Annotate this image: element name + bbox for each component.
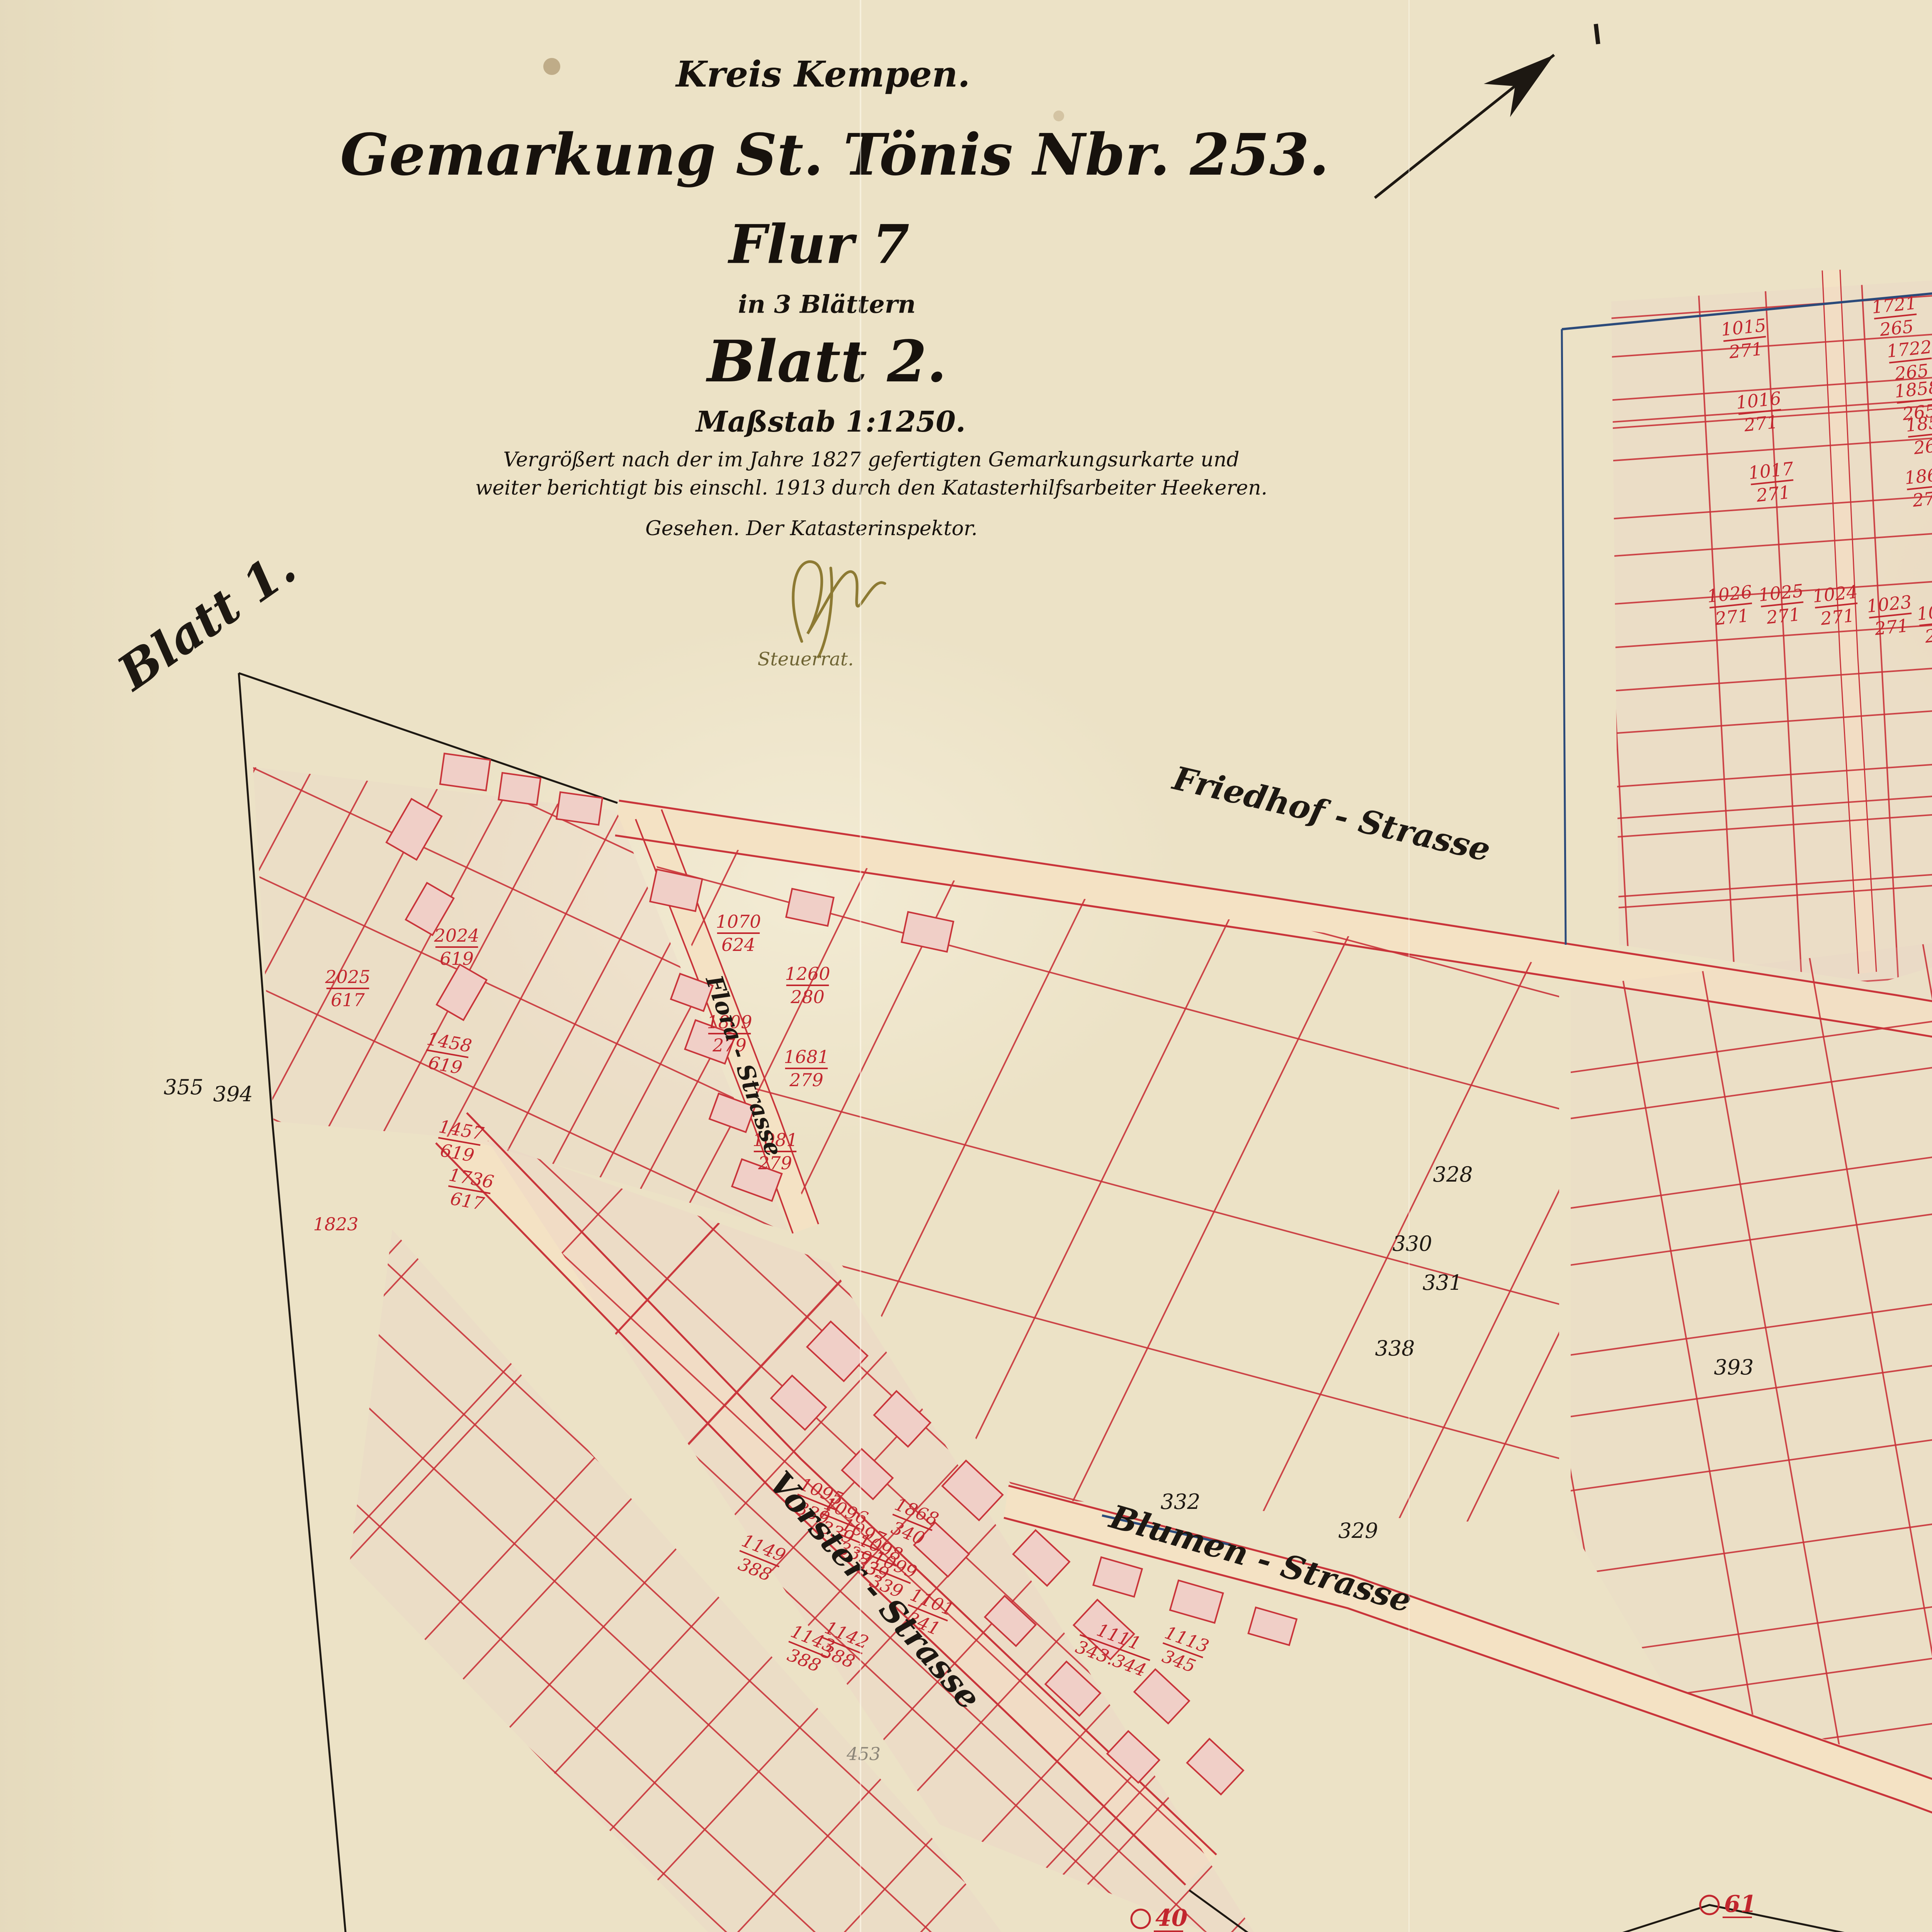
- parcel-boundary-line: [1282, 1876, 1681, 1932]
- title-note-1: Vergrößert nach der im Jahre 1827 gefert…: [503, 448, 1239, 471]
- parcel-number: 331: [1422, 1270, 1462, 1295]
- svg-text:1070: 1070: [716, 911, 761, 932]
- survey-point-number: 40: [1155, 1905, 1188, 1932]
- svg-text:329: 329: [1338, 1519, 1378, 1543]
- building-footprint: [498, 773, 541, 805]
- svg-text:271: 271: [1911, 486, 1932, 511]
- svg-text:328: 328: [1433, 1162, 1473, 1187]
- parcel-number: 328: [1433, 1162, 1473, 1187]
- parcel-boundary-line: [1467, 128, 1521, 1170]
- building-footprint: [1093, 1557, 1142, 1597]
- svg-text:331: 331: [1422, 1270, 1462, 1295]
- parcel-number: 1736617: [443, 1164, 495, 1216]
- blumen-strasse-label: Blumen - Strasse: [1105, 1497, 1416, 1620]
- parcel-boundary-line: [1337, 1846, 1932, 1932]
- paper-crease: [860, 0, 861, 1932]
- svg-text:330: 330: [1392, 1231, 1432, 1256]
- title-note-2: weiter berichtigt bis einschl. 1913 durc…: [475, 476, 1267, 500]
- survey-point-number: 64: [1914, 1930, 1932, 1932]
- svg-text:355: 355: [163, 1075, 203, 1099]
- title-gemarkung: Gemarkung St. Tönis Nbr. 253.: [340, 121, 1329, 188]
- svg-text:265: 265: [1912, 434, 1932, 458]
- survey-point-circle: [1131, 1910, 1150, 1928]
- svg-text:271: 271: [1743, 411, 1779, 435]
- svg-text:2025: 2025: [325, 966, 370, 987]
- building-footprint: [1187, 1739, 1243, 1794]
- paper-stain: [543, 58, 560, 75]
- svg-text:1681: 1681: [784, 1046, 829, 1067]
- title-steuerrat: Steuerrat.: [758, 648, 854, 670]
- parcel-boundary-line: [1244, 845, 1463, 1932]
- parcel-number: 330: [1392, 1231, 1432, 1256]
- svg-text:453: 453: [846, 1743, 881, 1764]
- parcel-number: 355: [163, 1075, 203, 1099]
- south-sheet-boundary: [1189, 1890, 1932, 1932]
- block-left-mid: [0, 368, 1165, 1614]
- parcel-number: 2024619: [434, 925, 479, 969]
- title-region: Kreis Kempen.: [676, 53, 970, 95]
- building-footprint: [650, 869, 702, 911]
- svg-text:1823: 1823: [313, 1214, 358, 1235]
- parcel-number: 453: [846, 1743, 881, 1764]
- svg-text:619: 619: [440, 948, 474, 969]
- parcel-number: 1823: [313, 1214, 358, 1235]
- parcel-boundary-line: [1474, 128, 1529, 1170]
- svg-text:271: 271: [1765, 604, 1801, 628]
- svg-text:271: 271: [1728, 338, 1764, 362]
- blue-boundary-vertical: [1562, 329, 1566, 945]
- parcel-number: 1070624: [716, 911, 761, 955]
- parcel-boundary-line: [1335, 1829, 1932, 1932]
- svg-text:1858: 1858: [1893, 376, 1932, 402]
- friedhof-strasse-label: Friedhof - Strasse: [1169, 759, 1494, 869]
- svg-text:271: 271: [1714, 605, 1750, 629]
- parcel-boundary-line: [314, 421, 1096, 786]
- parcel-boundary-line: [1268, 1882, 1667, 1932]
- svg-text:271: 271: [1755, 481, 1791, 506]
- building-footprint: [1170, 1580, 1223, 1623]
- parcel-boundary-line: [1330, 168, 1932, 241]
- map-drawing: 1015271101627110172711721265172226518582…: [0, 0, 1932, 1932]
- svg-text:271: 271: [1873, 615, 1910, 639]
- svg-text:2024: 2024: [434, 925, 479, 946]
- building-footprint: [556, 792, 602, 825]
- north-arrow-head: [1484, 55, 1554, 117]
- title-blaetter: in 3 Blättern: [738, 290, 916, 319]
- svg-text:624: 624: [721, 934, 755, 955]
- parcel-number: 1113345: [1154, 1622, 1212, 1679]
- svg-text:393: 393: [1714, 1355, 1753, 1379]
- parcel-number: 1681279: [784, 1046, 829, 1090]
- survey-point-40: 40: [1131, 1905, 1188, 1932]
- building-footprint: [1248, 1607, 1297, 1645]
- svg-text:332: 332: [1160, 1490, 1200, 1514]
- parcel-number: 394: [213, 1082, 253, 1106]
- svg-text:265: 265: [1878, 316, 1915, 340]
- parcel-boundary-line: [1327, 139, 1932, 212]
- building-footprint: [786, 889, 833, 926]
- parcel-boundary-line: [1318, 832, 1537, 1932]
- svg-text:394: 394: [213, 1082, 253, 1106]
- blatt-1-label: Blatt 1.: [107, 539, 306, 702]
- building-footprint: [440, 753, 490, 791]
- svg-text:271: 271: [1819, 605, 1855, 629]
- title-seen: Gesehen. Der Katasterinspektor.: [645, 517, 978, 540]
- paper-stain: [1053, 111, 1064, 121]
- svg-text:279: 279: [789, 1070, 823, 1090]
- parcel-boundary-line: [1331, 185, 1932, 258]
- parcel-number: 329: [1338, 1519, 1378, 1543]
- cadastral-map-sheet: 1015271101627110172711721265172226518582…: [0, 0, 1932, 1932]
- north-arrow: [1375, 55, 1554, 198]
- svg-text:280: 280: [790, 986, 825, 1007]
- survey-point-61: 61: [1700, 1891, 1757, 1918]
- title-blatt: Blatt 2.: [707, 328, 947, 395]
- title-flur: Flur 7: [729, 213, 910, 276]
- inspector-signature: [793, 562, 885, 657]
- parcel-number: 393: [1714, 1355, 1753, 1379]
- building-footprint: [901, 912, 953, 952]
- top-edge-mark: [1596, 24, 1598, 44]
- parcel-number: 332: [1160, 1490, 1200, 1514]
- title-scale: Maßstab 1:1250.: [696, 405, 966, 439]
- survey-point-number: 61: [1724, 1891, 1757, 1918]
- parcel-number: 2025617: [325, 966, 370, 1010]
- svg-text:1260: 1260: [785, 963, 830, 984]
- parcel-boundary-line: [1333, 829, 1552, 1932]
- paper-crease: [1408, 0, 1410, 1932]
- survey-point-64: 64: [1890, 1930, 1932, 1932]
- svg-text:617: 617: [331, 990, 365, 1010]
- parcel-number: 1260280: [785, 963, 830, 1007]
